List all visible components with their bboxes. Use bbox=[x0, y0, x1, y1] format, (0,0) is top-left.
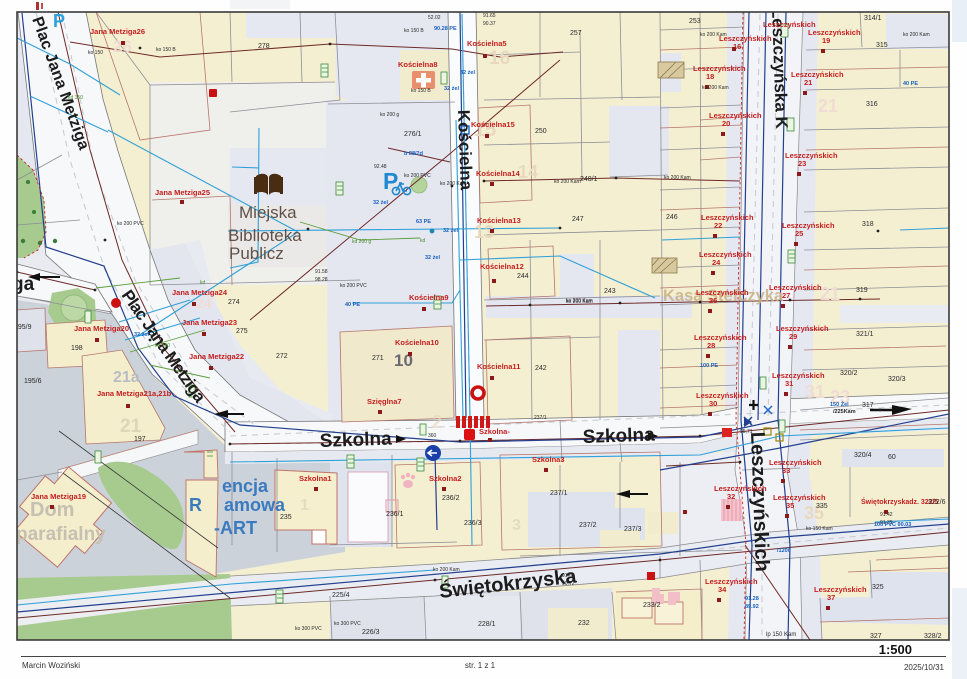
svg-text:Leszczyńskich: Leszczyńskich bbox=[808, 28, 861, 37]
svg-text:31: 31 bbox=[805, 382, 825, 402]
svg-text:32 żel: 32 żel bbox=[460, 70, 475, 76]
svg-text:318: 318 bbox=[862, 221, 874, 228]
svg-text:335: 335 bbox=[816, 503, 828, 510]
svg-text:26: 26 bbox=[113, 37, 132, 56]
svg-text:Kościelna9: Kościelna9 bbox=[409, 293, 449, 302]
svg-text:226/3: 226/3 bbox=[362, 629, 380, 636]
svg-text:91.62: 91.62 bbox=[562, 573, 575, 579]
svg-text:Leszczyńskich: Leszczyńskich bbox=[769, 283, 822, 292]
svg-text:316: 316 bbox=[866, 101, 878, 108]
svg-text:R: R bbox=[189, 495, 202, 515]
svg-text:20: 20 bbox=[722, 119, 730, 128]
svg-text:237/3: 237/3 bbox=[624, 526, 642, 533]
svg-text:32 żel: 32 żel bbox=[373, 200, 388, 206]
svg-text:Jana Metziga23: Jana Metziga23 bbox=[182, 318, 237, 327]
svg-text:Leszczyńskich: Leszczyńskich bbox=[776, 324, 829, 333]
svg-text:322/6: 322/6 bbox=[928, 499, 946, 506]
svg-text:ko 200 PVC: ko 200 PVC bbox=[340, 283, 367, 289]
svg-text:100 PE: 100 PE bbox=[700, 363, 718, 369]
svg-text:Kościelna15: Kościelna15 bbox=[471, 120, 515, 129]
svg-text:250: 250 bbox=[535, 128, 547, 135]
svg-text:Publicz: Publicz bbox=[229, 244, 284, 263]
svg-text:kd: kd bbox=[420, 238, 426, 244]
svg-text:32 żel: 32 żel bbox=[425, 255, 440, 261]
svg-text:29: 29 bbox=[789, 332, 797, 341]
svg-text:320/2: 320/2 bbox=[840, 370, 858, 377]
svg-text:92.48: 92.48 bbox=[374, 164, 387, 170]
svg-text:27: 27 bbox=[782, 291, 790, 300]
svg-text:237/2: 237/2 bbox=[579, 522, 597, 529]
svg-text:ko 300 PVC: ko 300 PVC bbox=[295, 626, 322, 632]
svg-text:275: 275 bbox=[236, 328, 248, 335]
svg-text:246: 246 bbox=[666, 214, 678, 221]
svg-text:91.65: 91.65 bbox=[483, 13, 496, 19]
svg-text:360: 360 bbox=[428, 433, 437, 439]
svg-text:19: 19 bbox=[822, 36, 830, 45]
svg-text:/1200: /1200 bbox=[777, 548, 791, 554]
svg-text:ko 200 Kam: ko 200 Kam bbox=[702, 85, 729, 91]
svg-text:23: 23 bbox=[798, 159, 806, 168]
svg-text:18: 18 bbox=[706, 72, 714, 81]
svg-text:2025/10/31: 2025/10/31 bbox=[904, 663, 945, 672]
svg-text:Kościelna10: Kościelna10 bbox=[395, 338, 439, 347]
svg-text:198: 198 bbox=[71, 345, 83, 352]
svg-text:95,71: 95,71 bbox=[740, 429, 753, 435]
svg-text:encja: encja bbox=[222, 476, 269, 496]
svg-text:26: 26 bbox=[709, 296, 717, 305]
svg-text:Leszczyńskich: Leszczyńskich bbox=[714, 484, 767, 493]
svg-text:32: 32 bbox=[727, 492, 735, 501]
svg-text:37: 37 bbox=[827, 593, 835, 602]
svg-text:34: 34 bbox=[718, 585, 727, 594]
svg-text:str. 1 z 1: str. 1 z 1 bbox=[465, 661, 496, 670]
svg-text:ko 150 B: ko 150 B bbox=[411, 88, 431, 94]
svg-text:22: 22 bbox=[714, 221, 722, 230]
svg-text:236/1: 236/1 bbox=[386, 511, 404, 518]
svg-text:327: 327 bbox=[870, 633, 882, 640]
svg-text:ko 200 Kam: ko 200 Kam bbox=[554, 179, 581, 185]
svg-text:Świętokrzyskadz. 322/5: Świętokrzyskadz. 322/5 bbox=[861, 497, 939, 506]
svg-text:272: 272 bbox=[276, 353, 288, 360]
svg-text:ko 200 PVC: ko 200 PVC bbox=[117, 221, 144, 227]
svg-text:40 PE: 40 PE bbox=[903, 81, 918, 87]
svg-text:278: 278 bbox=[258, 43, 270, 50]
svg-text:2: 2 bbox=[432, 412, 442, 432]
svg-text:Kościelna12: Kościelna12 bbox=[480, 262, 524, 271]
svg-text:kd: kd bbox=[200, 280, 206, 286]
svg-text:276/1: 276/1 bbox=[404, 131, 422, 138]
svg-text:kd 200 g: kd 200 g bbox=[352, 239, 371, 245]
svg-text:Kościelna14: Kościelna14 bbox=[476, 169, 521, 178]
svg-text:Leszczyńskich: Leszczyńskich bbox=[693, 64, 746, 73]
svg-text:90.37: 90.37 bbox=[483, 21, 496, 27]
svg-text:Marcin Woziński: Marcin Woziński bbox=[22, 661, 80, 670]
svg-text:24: 24 bbox=[712, 258, 721, 267]
svg-text:amowa: amowa bbox=[224, 495, 286, 515]
svg-text:236/3: 236/3 bbox=[464, 520, 482, 527]
svg-text:ko 200 g: ko 200 g bbox=[380, 112, 399, 118]
svg-text:ko 200 Kam: ko 200 Kam bbox=[664, 175, 691, 181]
svg-text:236/2: 236/2 bbox=[442, 495, 460, 502]
svg-text:100 PVC 90.03: 100 PVC 90.03 bbox=[874, 522, 911, 528]
svg-text:31: 31 bbox=[785, 379, 793, 388]
svg-text:Leszczyńskich: Leszczyńskich bbox=[772, 371, 825, 380]
svg-text:1: 1 bbox=[300, 497, 309, 514]
svg-text:237/1: 237/1 bbox=[534, 415, 547, 421]
svg-text:257: 257 bbox=[570, 30, 582, 37]
svg-text:Jana Metziga22: Jana Metziga22 bbox=[189, 352, 244, 361]
svg-text:32 żel: 32 żel bbox=[134, 332, 149, 338]
svg-text:Jana Metziga21a,21b: Jana Metziga21a,21b bbox=[97, 389, 172, 398]
svg-text:ko 200 Kam: ko 200 Kam bbox=[433, 567, 460, 573]
svg-text:91.28: 91.28 bbox=[745, 596, 759, 602]
svg-text:244: 244 bbox=[517, 273, 529, 280]
svg-text:kd 150: kd 150 bbox=[155, 343, 170, 349]
svg-text:89.92: 89.92 bbox=[745, 604, 759, 610]
svg-text:Leszczyńskich: Leszczyńskich bbox=[785, 151, 838, 160]
svg-text:Leszczyńskich: Leszczyńskich bbox=[705, 577, 758, 586]
svg-text:30: 30 bbox=[709, 399, 717, 408]
svg-text:33: 33 bbox=[782, 466, 790, 475]
svg-text:Kościelna8: Kościelna8 bbox=[398, 60, 438, 69]
svg-text:Leszczyńskich: Leszczyńskich bbox=[782, 221, 835, 230]
svg-text:parafialny: parafialny bbox=[16, 524, 106, 545]
svg-text:320/4: 320/4 bbox=[854, 452, 872, 459]
svg-text:Kościelna11: Kościelna11 bbox=[477, 362, 520, 371]
svg-text:325: 325 bbox=[872, 584, 884, 591]
svg-text:40 PE: 40 PE bbox=[345, 302, 360, 308]
svg-text:274: 274 bbox=[228, 299, 240, 306]
svg-text:Leszczyńskich: Leszczyńskich bbox=[773, 493, 826, 502]
svg-text:Kościelna13: Kościelna13 bbox=[477, 216, 521, 225]
svg-text:Szkolna: Szkolna bbox=[582, 424, 655, 448]
svg-text:228/1: 228/1 bbox=[478, 621, 496, 628]
svg-text:ko 150 Kam: ko 150 Kam bbox=[806, 526, 833, 532]
svg-text:320/3: 320/3 bbox=[888, 376, 906, 383]
svg-text:197: 197 bbox=[134, 436, 146, 443]
svg-text:328/2: 328/2 bbox=[924, 633, 942, 640]
svg-text:248/1: 248/1 bbox=[580, 176, 598, 183]
svg-text:232: 232 bbox=[578, 620, 590, 627]
svg-text:21: 21 bbox=[818, 96, 838, 116]
svg-text:21: 21 bbox=[804, 78, 812, 87]
svg-text:Jana Metziga26: Jana Metziga26 bbox=[90, 27, 145, 36]
svg-text:kd 150: kd 150 bbox=[68, 95, 83, 101]
svg-text:321/1: 321/1 bbox=[856, 331, 874, 338]
svg-text:35: 35 bbox=[786, 501, 794, 510]
svg-text:233/2: 233/2 bbox=[643, 602, 661, 609]
svg-text:ko 150: ko 150 bbox=[88, 50, 103, 56]
svg-text:21a: 21a bbox=[113, 369, 140, 386]
svg-text:52.02: 52.02 bbox=[428, 15, 441, 21]
svg-text:ko 200 Kam: ko 200 Kam bbox=[566, 298, 593, 304]
svg-text:ko 150 B: ko 150 B bbox=[156, 47, 176, 53]
svg-text:195/6: 195/6 bbox=[24, 378, 42, 385]
svg-text:317: 317 bbox=[862, 402, 874, 409]
svg-text:Szkolna-: Szkolna- bbox=[479, 427, 510, 436]
svg-text:242: 242 bbox=[535, 365, 547, 372]
svg-text:ko 200 PVC: ko 200 PVC bbox=[404, 173, 431, 179]
svg-text:1:500: 1:500 bbox=[879, 642, 912, 657]
svg-text:lp 150 Kam: lp 150 Kam bbox=[766, 632, 796, 638]
svg-text:Leszczyńskich: Leszczyńskich bbox=[696, 391, 749, 400]
svg-text:3: 3 bbox=[512, 517, 521, 534]
svg-text:Szięglna7: Szięglna7 bbox=[367, 397, 402, 406]
svg-text:Leszczyńskich: Leszczyńskich bbox=[694, 333, 747, 342]
svg-text:32 żel: 32 żel bbox=[444, 86, 459, 92]
svg-text:253: 253 bbox=[689, 18, 701, 25]
svg-text:Leszczyńskich: Leszczyńskich bbox=[791, 70, 844, 79]
svg-text:Miejska: Miejska bbox=[239, 203, 297, 222]
svg-text:14: 14 bbox=[518, 162, 538, 182]
svg-text:Szkolna: Szkolna bbox=[319, 428, 392, 452]
svg-text:90.72: 90.72 bbox=[562, 581, 575, 587]
svg-text:243: 243 bbox=[604, 288, 616, 295]
svg-text:28: 28 bbox=[707, 341, 715, 350]
svg-text:ko 200 Kam: ko 200 Kam bbox=[700, 32, 727, 38]
svg-text:Szkolna3: Szkolna3 bbox=[532, 455, 565, 464]
svg-text:Leszczyńskich: Leszczyńskich bbox=[699, 250, 752, 259]
svg-text:ko 200 Kam: ko 200 Kam bbox=[903, 32, 930, 38]
svg-text:21: 21 bbox=[120, 416, 142, 437]
svg-text:319: 319 bbox=[856, 287, 868, 294]
svg-text:91.58: 91.58 bbox=[315, 269, 328, 275]
svg-text:P: P bbox=[53, 11, 65, 31]
svg-text:Dom: Dom bbox=[30, 499, 74, 521]
svg-text:90.28 PE: 90.28 PE bbox=[434, 26, 457, 32]
svg-text:Leszczyńskich: Leszczyńskich bbox=[709, 111, 762, 120]
svg-text:Kościelna5: Kościelna5 bbox=[467, 39, 507, 48]
svg-text:237/1: 237/1 bbox=[550, 490, 568, 497]
svg-text:24: 24 bbox=[196, 295, 212, 311]
svg-text:235: 235 bbox=[280, 514, 292, 521]
svg-text:98.28: 98.28 bbox=[315, 277, 328, 283]
svg-text:315: 315 bbox=[876, 42, 888, 49]
svg-text:21: 21 bbox=[820, 284, 840, 304]
svg-text:16: 16 bbox=[489, 48, 510, 69]
svg-text:314/1: 314/1 bbox=[864, 15, 882, 22]
svg-text:91.42: 91.42 bbox=[880, 512, 893, 518]
svg-text:Leszczyńskich: Leszczyńskich bbox=[719, 34, 772, 43]
svg-text:ga: ga bbox=[12, 274, 35, 295]
svg-text:b 88/2d: b 88/2d bbox=[404, 151, 423, 157]
svg-text:ko 300 PVC: ko 300 PVC bbox=[334, 621, 361, 627]
svg-text:Szkolna2: Szkolna2 bbox=[429, 474, 462, 483]
svg-text:-ART: -ART bbox=[214, 518, 257, 538]
svg-text:Szkolna1: Szkolna1 bbox=[299, 474, 332, 483]
svg-text:Jana Metziga24: Jana Metziga24 bbox=[172, 288, 228, 297]
svg-text:Biblioteka: Biblioteka bbox=[228, 226, 302, 245]
svg-text:Leszczyńskich: Leszczyńskich bbox=[769, 458, 822, 467]
svg-text:Leszczyńskich: Leszczyńskich bbox=[701, 213, 754, 222]
svg-text:63 PE: 63 PE bbox=[416, 219, 431, 225]
svg-text:225/4: 225/4 bbox=[332, 592, 350, 599]
svg-text:25: 25 bbox=[795, 229, 803, 238]
svg-text:Jana Metziga19: Jana Metziga19 bbox=[31, 492, 86, 501]
svg-text:32 żel: 32 żel bbox=[443, 228, 458, 234]
svg-text:60: 60 bbox=[888, 454, 896, 461]
svg-text:Leszczyńskich: Leszczyńskich bbox=[814, 585, 867, 594]
svg-text:Jana Metziga20: Jana Metziga20 bbox=[74, 324, 129, 333]
svg-text:Leszczyńskich: Leszczyńskich bbox=[696, 288, 749, 297]
svg-text:/225Kam: /225Kam bbox=[833, 409, 856, 415]
svg-text:150 Żel: 150 Żel bbox=[830, 401, 849, 408]
svg-text:Jana Metziga25: Jana Metziga25 bbox=[155, 188, 210, 197]
svg-text:ko 150 B: ko 150 B bbox=[404, 28, 424, 34]
svg-text:247: 247 bbox=[572, 216, 584, 223]
svg-text:271: 271 bbox=[372, 355, 384, 362]
